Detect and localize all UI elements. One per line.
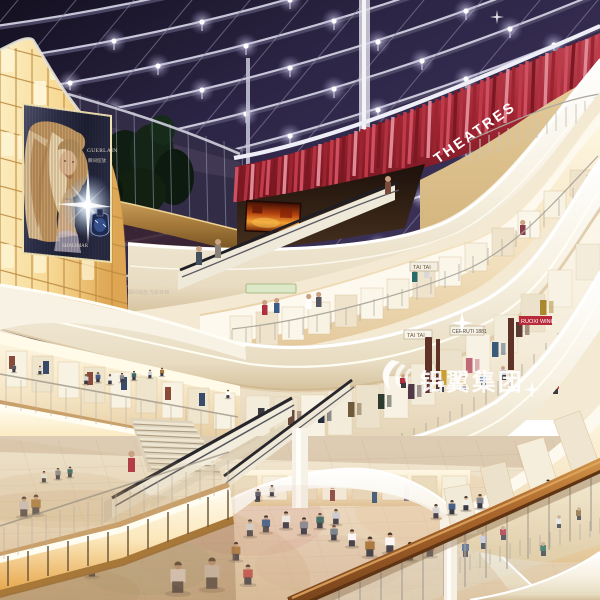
svg-text:CERRUTI 1881: CERRUTI 1881 [452,329,487,335]
svg-text:瞬间绽放 光彩夺目: 瞬间绽放 光彩夺目 [128,289,169,296]
svg-text:TAI TAI: TAI TAI [413,265,431,271]
svg-text:SHALIMAR: SHALIMAR [62,244,89,249]
svg-text:RUOXI WING: RUOXI WING [521,319,555,325]
svg-text:TAI TAI: TAI TAI [407,333,425,339]
svg-text:GUERLAIN: GUERLAIN [128,279,165,286]
svg-text:铝翼集团: 铝翼集团 [420,368,524,395]
svg-text:瞬间绽放: 瞬间绽放 [88,157,106,164]
svg-text:GUERLAIN: GUERLAIN [87,148,118,154]
